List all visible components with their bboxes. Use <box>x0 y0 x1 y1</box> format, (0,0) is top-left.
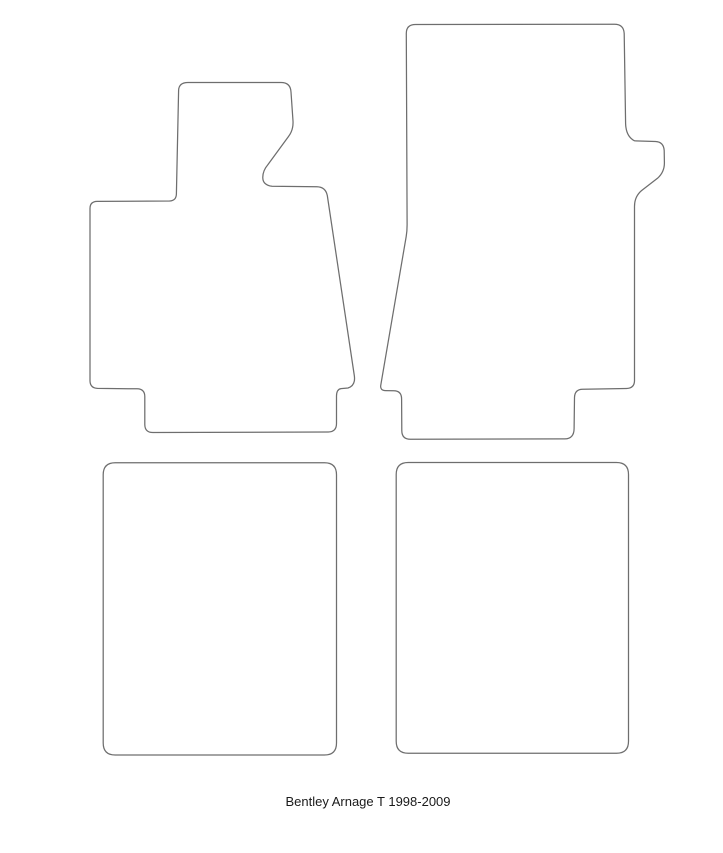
caption-label: Bentley Arnage T 1998-2009 <box>285 794 450 809</box>
front-left-mat-outline <box>90 83 355 433</box>
front-right-mat-outline <box>381 24 665 439</box>
mat-outlines-drawing: Bentley Arnage T 1998-2009 <box>0 0 723 853</box>
rear-right-mat-outline <box>396 463 628 754</box>
car-mat-template-sheet: Bentley Arnage T 1998-2009 <box>0 0 723 853</box>
rear-left-mat-outline <box>103 463 336 755</box>
